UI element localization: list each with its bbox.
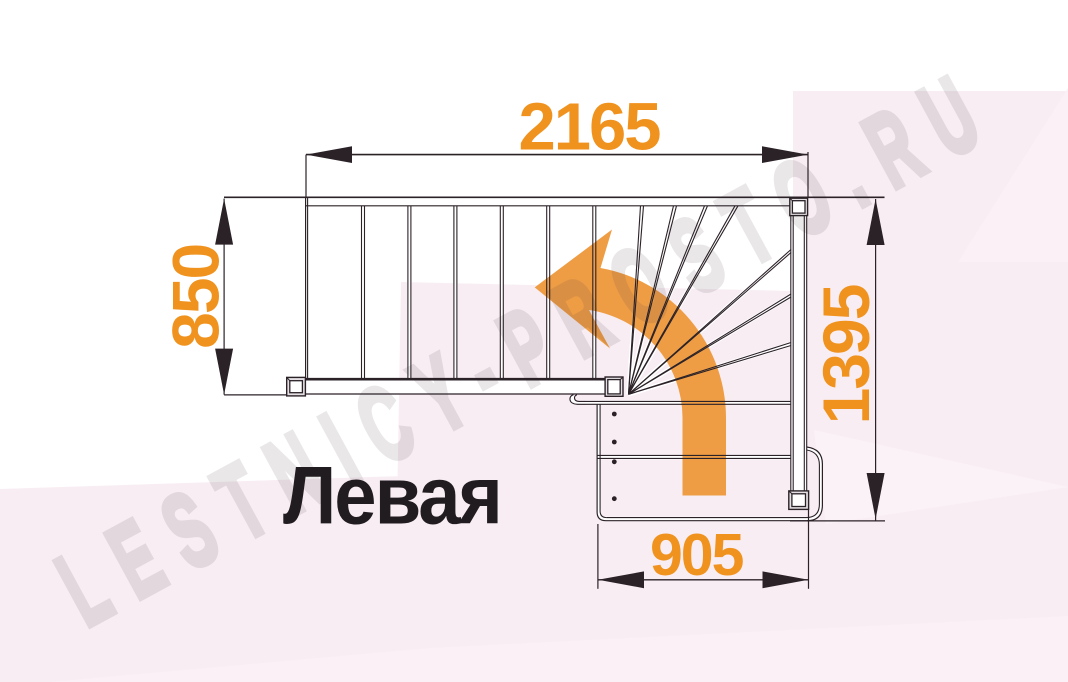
svg-text:905: 905 (650, 522, 744, 588)
svg-text:1395: 1395 (809, 285, 883, 424)
svg-text:850: 850 (159, 245, 233, 349)
svg-text:Левая: Левая (283, 449, 501, 541)
svg-text:2165: 2165 (518, 90, 660, 165)
